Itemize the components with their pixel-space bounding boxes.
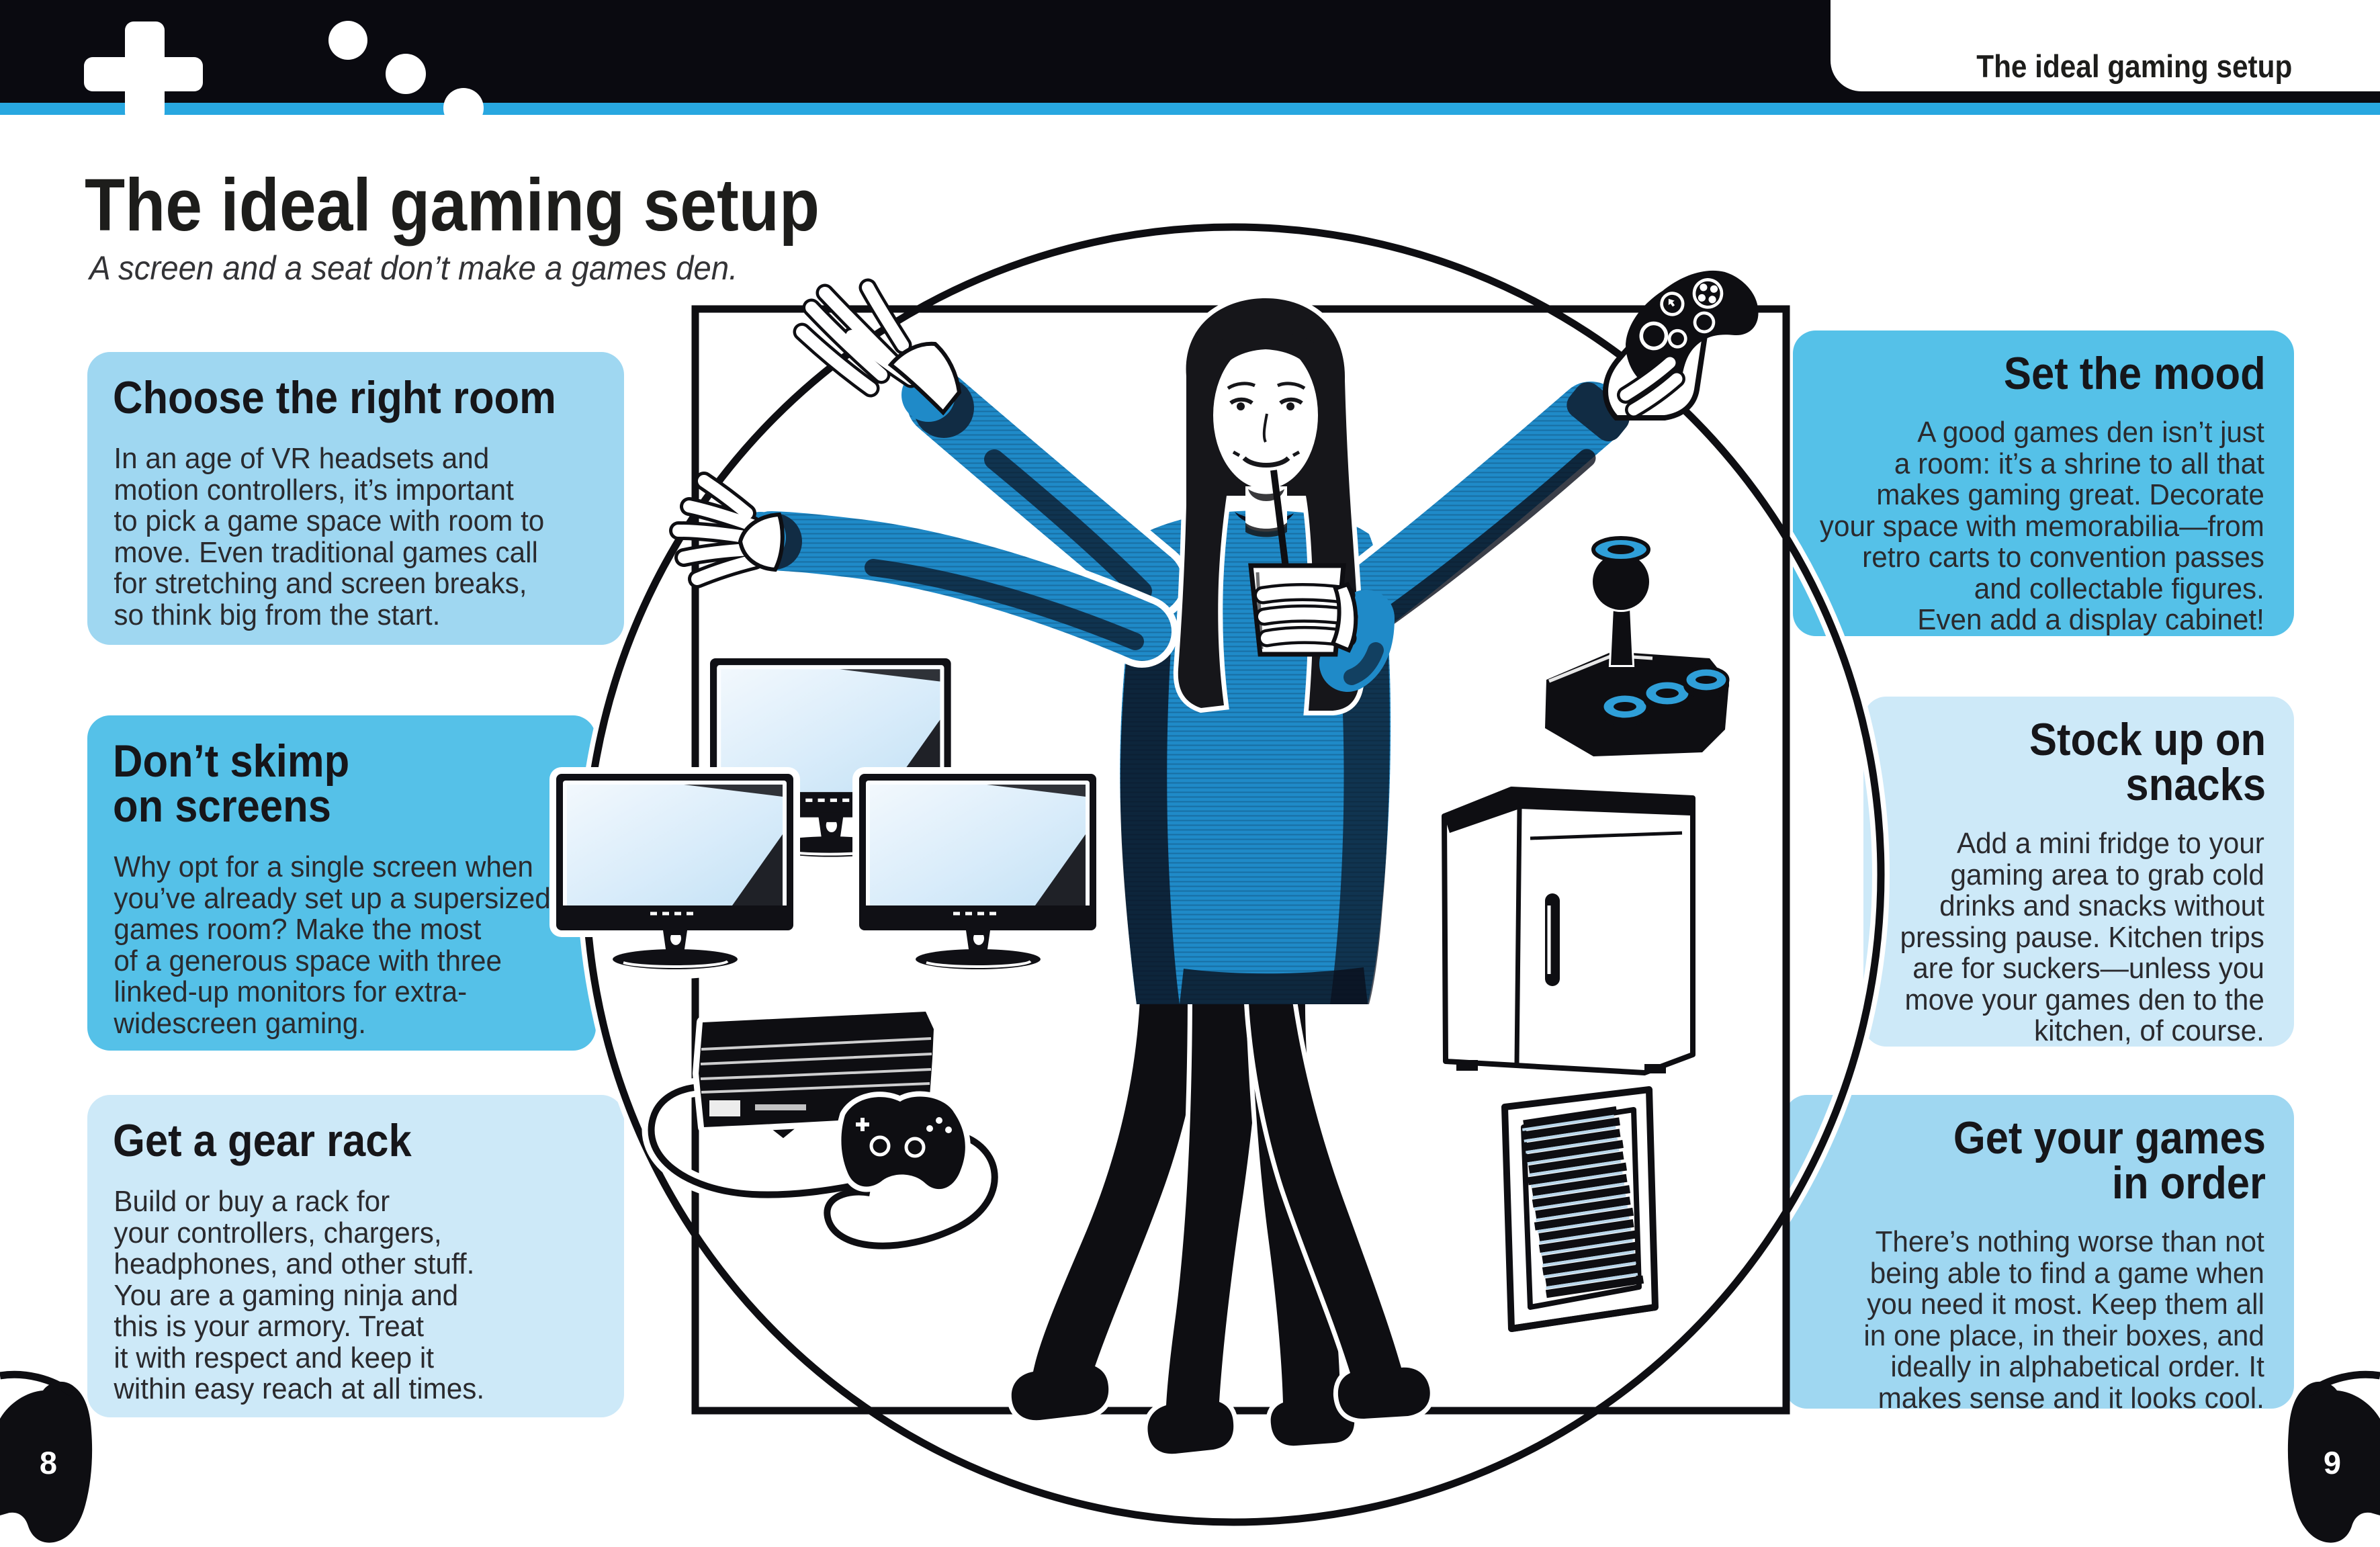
svg-text:9: 9 — [2324, 1445, 2341, 1480]
svg-text:8: 8 — [40, 1445, 57, 1480]
